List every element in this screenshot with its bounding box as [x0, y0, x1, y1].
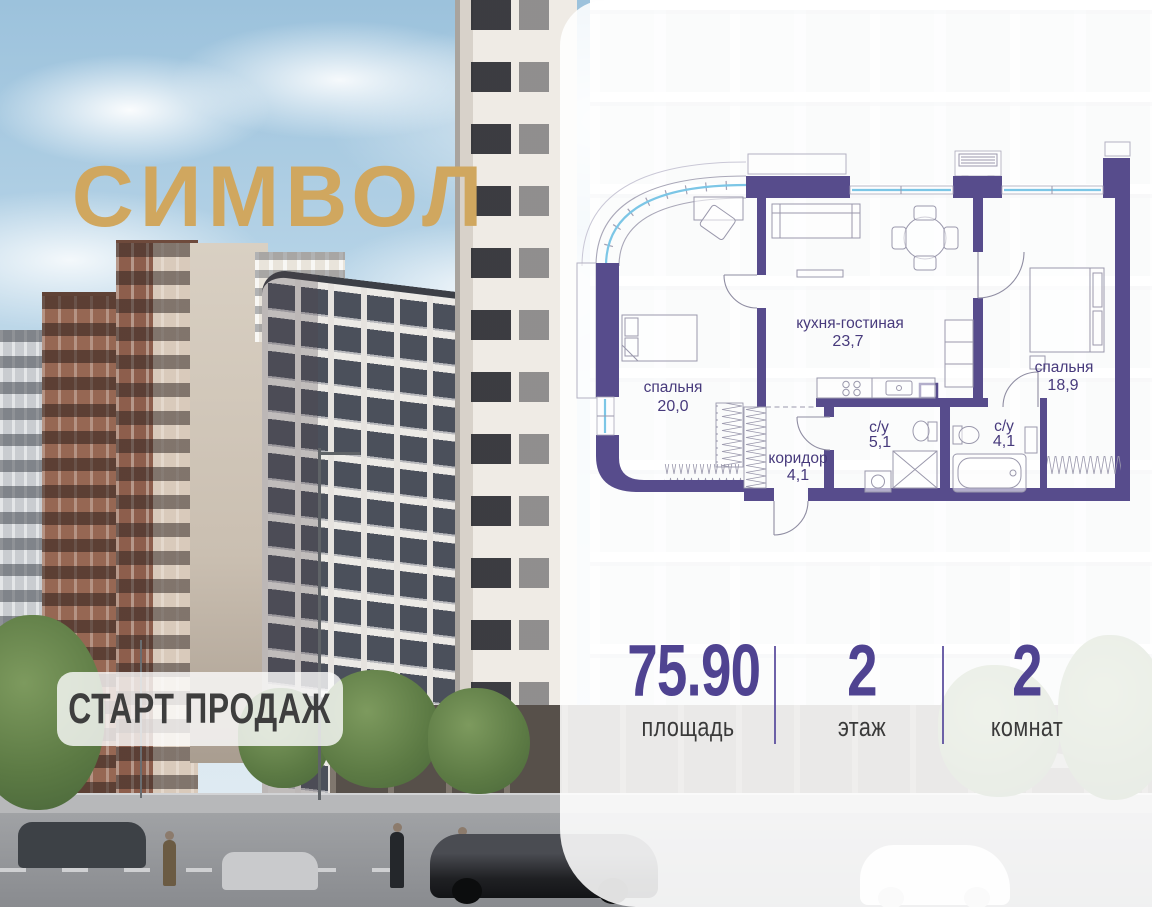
sales-start-banner: СТАРТ ПРОДАЖ	[57, 672, 343, 746]
sales-start-label: СТАРТ ПРОДАЖ	[69, 685, 332, 734]
project-logo: СИМВОЛ	[40, 148, 520, 247]
stat-area: 75.90 площадь	[608, 640, 768, 743]
stat-rooms-value: 2	[966, 639, 1088, 702]
parapet-ledge	[1105, 142, 1130, 156]
balcony-rail-top	[748, 154, 846, 174]
room-label-corridor: коридор	[768, 450, 827, 467]
stat-rooms: 2 комнат	[947, 640, 1107, 743]
room-area-bedroom1: 20,0	[657, 398, 688, 415]
listing-card: БАРБЕРШОП СИМВОЛ СТАРТ ПРОДАЖ	[0, 0, 1152, 907]
room-label-kitchen: кухня-гостиная	[796, 315, 904, 332]
stat-floor: 2 этаж	[782, 640, 942, 743]
stats-bar: 75.90 площадь 2 этаж 2 комнат	[576, 640, 1146, 760]
pedestrian	[390, 832, 404, 888]
room-label-bedroom1: спальня	[644, 379, 703, 396]
stat-area-label: площадь	[624, 712, 752, 743]
room-area-bath2: 4,1	[993, 433, 1015, 450]
stats-divider	[774, 646, 776, 744]
room-area-corridor: 4,1	[787, 467, 809, 484]
stat-rooms-label: комнат	[963, 712, 1091, 743]
room-label-bedroom2: спальня	[1035, 359, 1094, 376]
stat-floor-label: этаж	[798, 712, 926, 743]
stats-divider	[942, 646, 944, 744]
radiator-bedroom2	[1047, 456, 1121, 477]
wardrobe-bedroom1	[716, 403, 743, 467]
stat-floor-value: 2	[801, 639, 923, 702]
parked-car	[222, 852, 318, 890]
room-area-bedroom2: 18,9	[1047, 377, 1078, 394]
ac-unit	[955, 151, 1001, 179]
tree	[428, 688, 530, 794]
pedestrian	[163, 840, 176, 886]
room-area-kitchen: 23,7	[832, 333, 863, 350]
street-lamp	[318, 448, 321, 800]
wardrobe-corridor	[744, 407, 766, 488]
balcony-ledge-left	[577, 263, 596, 398]
radiator-bedroom1	[664, 464, 742, 480]
room-area-bath1: 5,1	[869, 434, 891, 451]
stat-area-value: 75.90	[627, 639, 749, 702]
floor-plan: спальня 20,0 кухня-гостиная 23,7 спальня…	[576, 140, 1146, 540]
parked-suv	[18, 822, 146, 868]
